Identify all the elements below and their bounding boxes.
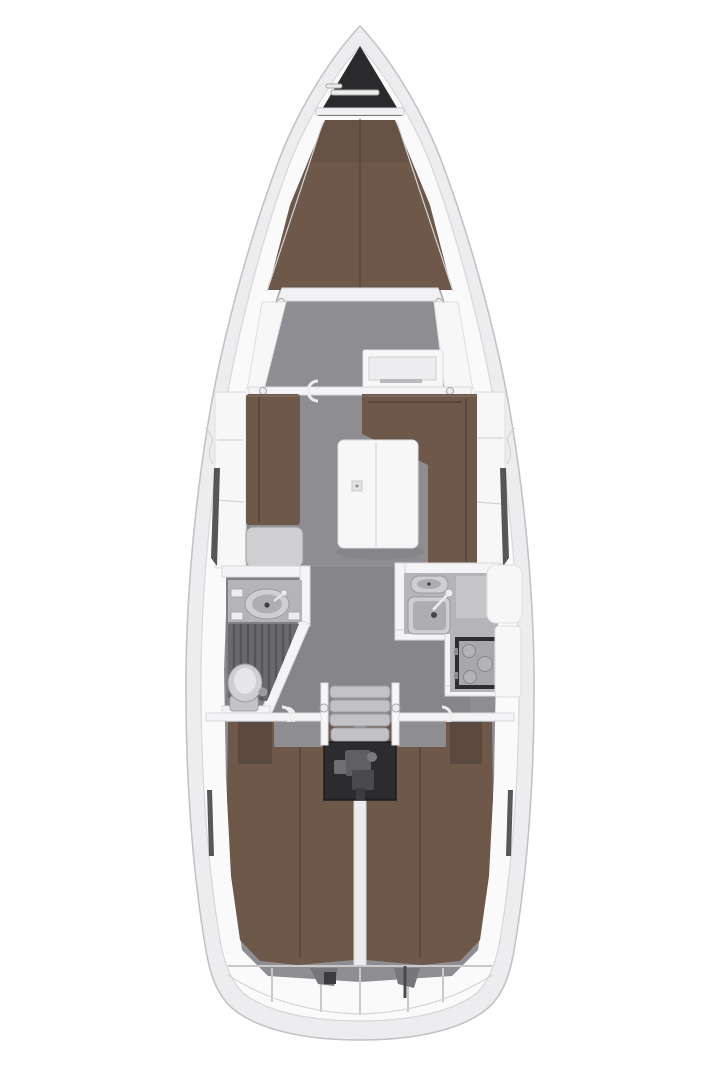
vanity-tab-1 <box>231 589 243 597</box>
galley-sink-small-drain <box>427 582 431 586</box>
galley-fridge-top <box>487 565 522 623</box>
engine-shaft <box>356 788 365 800</box>
aft-bulkhead-port <box>206 713 324 721</box>
head-sink <box>245 589 289 619</box>
stove-gimbal-2 <box>454 672 458 679</box>
galley-sink-main-drain <box>431 612 437 618</box>
vanity-tab-2 <box>231 612 243 620</box>
aft-entry-stbd <box>398 722 446 747</box>
galley-sink-main-bowl <box>413 601 446 630</box>
engine-manifold <box>352 770 374 790</box>
windlass-bar <box>331 90 379 95</box>
aft-entry-port <box>274 722 322 747</box>
toilet-pump <box>259 688 268 697</box>
floor-plan-svg <box>0 0 720 1080</box>
table-latch-dot <box>356 485 359 488</box>
table-top <box>338 440 418 548</box>
toilet-bowl <box>234 668 256 694</box>
steering-box-port <box>324 972 336 984</box>
port-settee <box>246 394 300 525</box>
side-locker-port <box>215 392 246 568</box>
companionway-ladder <box>320 683 400 745</box>
ladder-step-4 <box>331 728 389 741</box>
ladder-knob-port <box>320 704 328 712</box>
saloon-table <box>336 440 424 560</box>
ladder-step-2 <box>330 700 390 712</box>
locker-aft-edge <box>316 108 404 115</box>
head-sink-drain <box>264 602 269 607</box>
bulkhead-fitting-stbd <box>447 388 454 395</box>
galley-wall-top <box>395 563 500 574</box>
ladder-step-3 <box>330 714 390 726</box>
stove-burner-1 <box>463 645 476 658</box>
companionway <box>320 683 400 800</box>
port-settee-cushion <box>246 394 300 525</box>
galley-wall-left <box>395 563 405 639</box>
aft-wardrobe-port <box>238 722 272 764</box>
aft-wardrobe-stbd <box>450 722 482 764</box>
ladder-rail-port <box>321 683 328 745</box>
aft-center-divider <box>354 796 366 966</box>
fwd-cabinet <box>363 350 443 392</box>
berth-foot-board <box>277 288 443 301</box>
engine-pulley <box>367 752 377 762</box>
ladder-knob-stbd <box>392 704 400 712</box>
cabinet-handle <box>380 379 422 383</box>
galley-sinks <box>408 576 453 634</box>
cabinet-drawer <box>369 357 436 380</box>
ladder-step-1 <box>330 686 390 698</box>
stove-burner-3 <box>464 671 477 684</box>
vanity-tab-3 <box>288 612 300 620</box>
windlass-hook <box>326 84 342 88</box>
boat-floor-plan <box>0 0 720 1080</box>
chart-table <box>246 527 303 567</box>
head-wall-top <box>222 566 310 577</box>
stove-gimbal-1 <box>454 648 458 655</box>
aft-bulkhead-stbd <box>396 713 514 721</box>
stove <box>454 637 499 689</box>
bulkhead-fitting-port <box>260 388 267 395</box>
bulkhead-wall <box>249 387 471 395</box>
galley-locker-lower <box>495 626 521 697</box>
stove-burner-2 <box>478 657 493 672</box>
ladder-rail-stbd <box>392 683 399 745</box>
engine-pump <box>334 760 346 774</box>
